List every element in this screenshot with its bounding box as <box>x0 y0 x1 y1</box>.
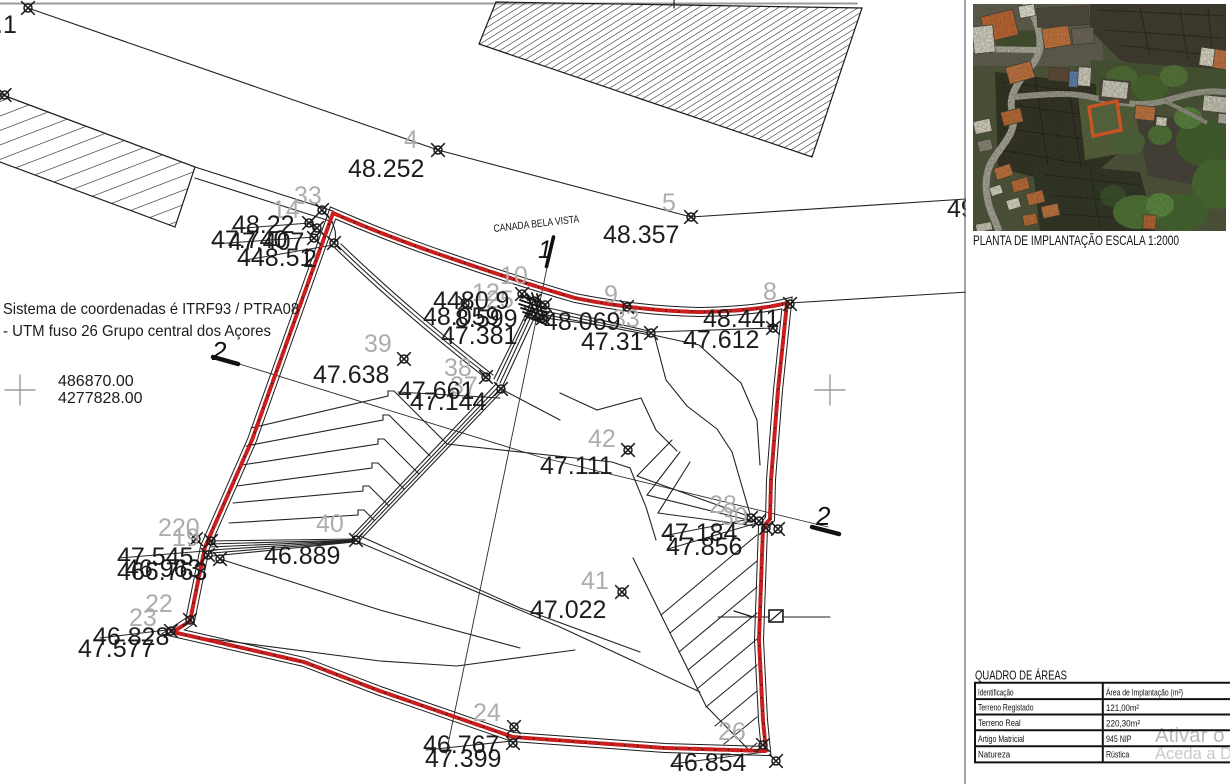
svg-text:48.252: 48.252 <box>348 155 424 183</box>
svg-text:47.144: 47.144 <box>410 388 487 416</box>
svg-text:Sistema de coordenadas é ITRF9: Sistema de coordenadas é ITRF93 / PTRA08 <box>3 301 299 318</box>
svg-text:.1: .1 <box>0 11 17 39</box>
svg-text:448.51: 448.51 <box>237 244 313 272</box>
svg-text:47.612: 47.612 <box>683 326 759 354</box>
svg-text:Aceda a Def: Aceda a Def <box>1155 745 1230 763</box>
svg-text:47.381: 47.381 <box>441 322 517 350</box>
svg-text:945 NIP: 945 NIP <box>1106 734 1132 745</box>
svg-text:47.399: 47.399 <box>425 745 501 773</box>
svg-text:47.577: 47.577 <box>78 635 154 663</box>
svg-text:2: 2 <box>211 336 227 366</box>
svg-text:47.111: 47.111 <box>540 452 613 480</box>
svg-text:41: 41 <box>581 567 609 595</box>
svg-text:Área de Implantação (m²): Área de Implantação (m²) <box>1106 688 1183 699</box>
svg-text:46.889: 46.889 <box>264 542 340 570</box>
svg-text:47.022: 47.022 <box>530 596 606 624</box>
svg-text:5: 5 <box>662 189 676 217</box>
svg-text:1: 1 <box>538 236 552 264</box>
svg-text:PLANTA DE IMPLANTAÇÃO ESCALA 1: PLANTA DE IMPLANTAÇÃO ESCALA 1:2000 <box>973 233 1179 248</box>
svg-text:47.856: 47.856 <box>666 533 742 561</box>
svg-text:24: 24 <box>473 699 501 727</box>
svg-text:2: 2 <box>815 501 831 531</box>
svg-text:Ativar o W: Ativar o W <box>1155 724 1230 747</box>
svg-text:42: 42 <box>588 425 616 453</box>
svg-text:46.854: 46.854 <box>670 749 747 777</box>
svg-text:47.638: 47.638 <box>313 361 389 389</box>
svg-text:48.357: 48.357 <box>603 221 679 249</box>
svg-text:2: 2 <box>303 245 317 273</box>
svg-text:121,00m²: 121,00m² <box>1106 703 1140 714</box>
svg-text:47.31: 47.31 <box>581 328 644 356</box>
svg-text:Terreno Registado: Terreno Registado <box>978 703 1034 714</box>
svg-text:QUADRO DE ÁREAS: QUADRO DE ÁREAS <box>975 668 1067 683</box>
svg-text:4: 4 <box>404 126 418 154</box>
svg-text:220,30m²: 220,30m² <box>1106 719 1141 730</box>
svg-text:Terreno Real: Terreno Real <box>978 718 1021 729</box>
svg-text:- UTM fuso 26 Grupo central do: - UTM fuso 26 Grupo central dos Açores <box>3 323 271 340</box>
svg-text:Artigo Matricial: Artigo Matricial <box>978 734 1025 745</box>
svg-text:Identificação: Identificação <box>978 688 1014 699</box>
svg-text:26: 26 <box>718 718 746 746</box>
svg-text:8: 8 <box>763 278 777 306</box>
svg-text:40: 40 <box>316 510 344 538</box>
svg-text:46.963: 46.963 <box>125 555 201 583</box>
svg-text:Natureza: Natureza <box>978 750 1011 761</box>
svg-text:4277828.00: 4277828.00 <box>58 390 143 407</box>
svg-text:Rústica: Rústica <box>1106 750 1130 761</box>
svg-text:486870.00: 486870.00 <box>58 373 134 390</box>
svg-text:39: 39 <box>364 330 392 358</box>
